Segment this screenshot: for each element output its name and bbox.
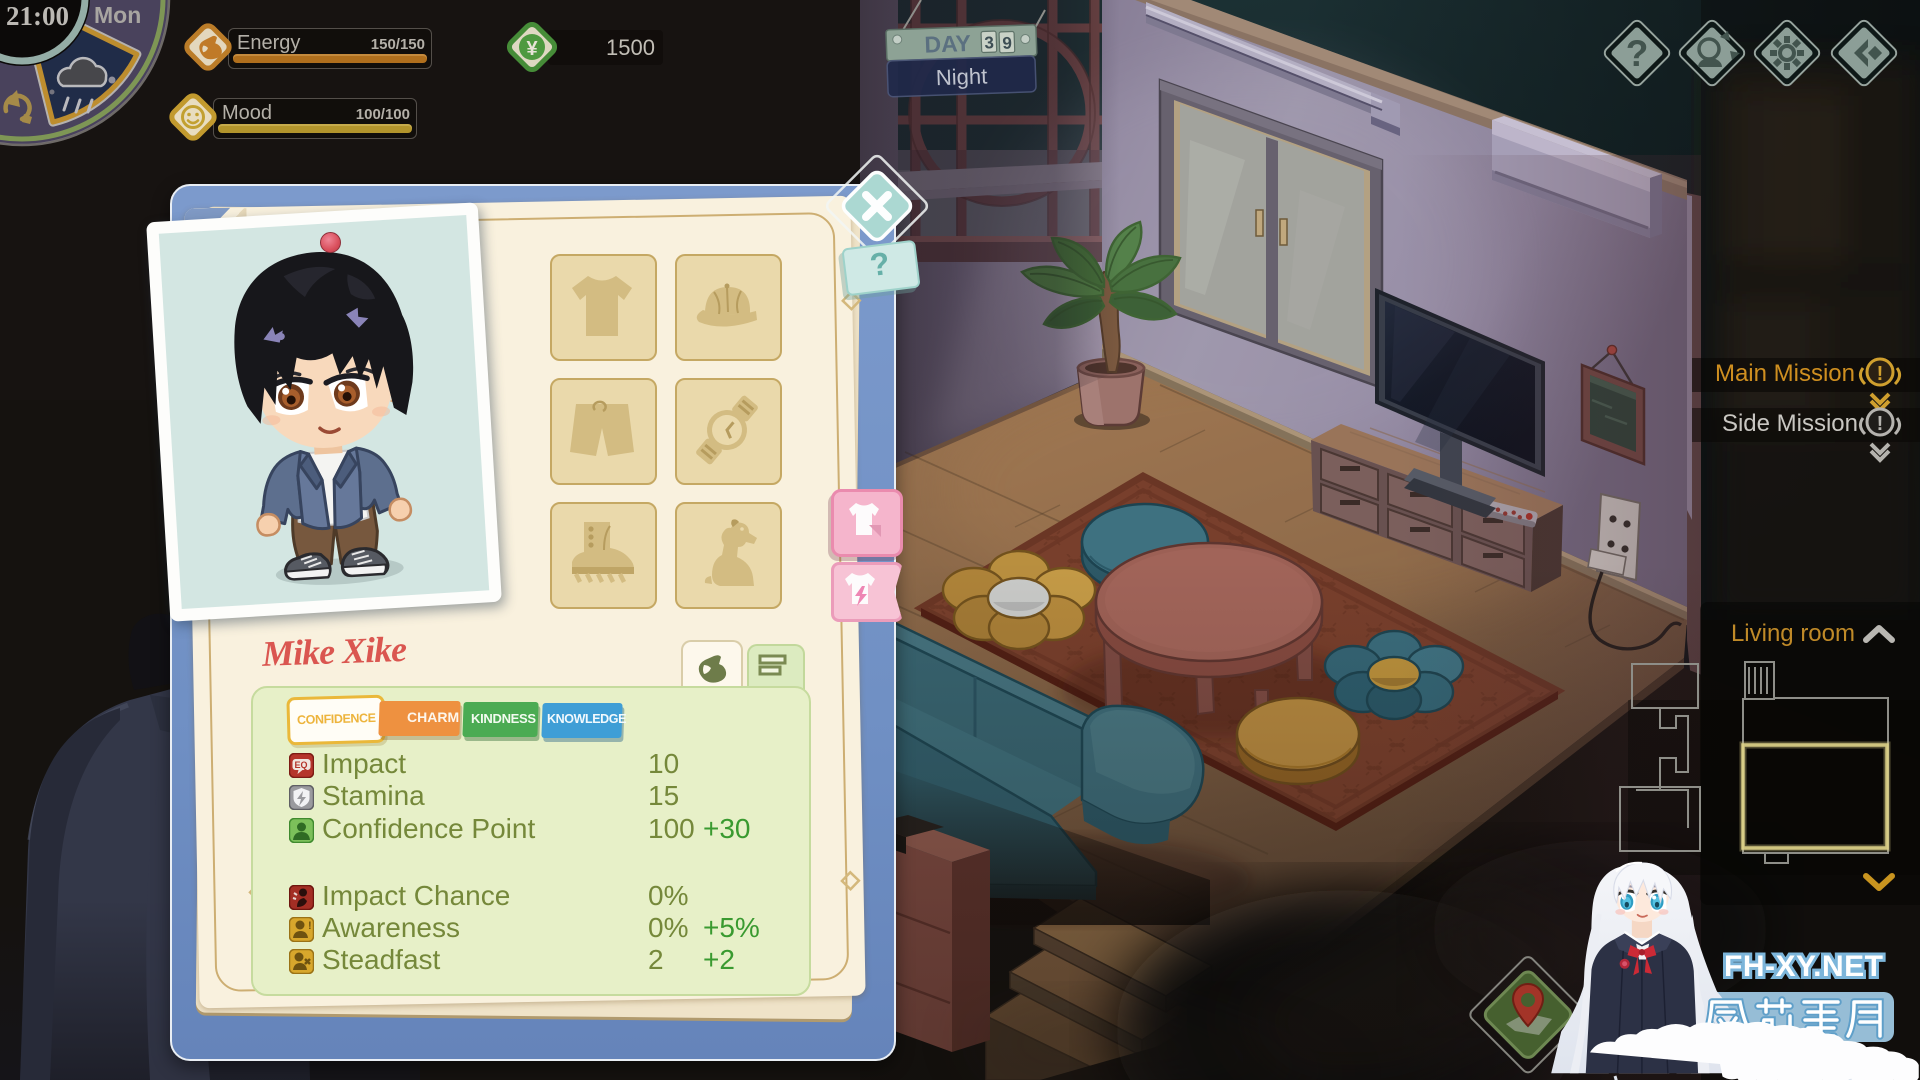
svg-text:FH-XY.NET: FH-XY.NET [1724, 950, 1884, 983]
